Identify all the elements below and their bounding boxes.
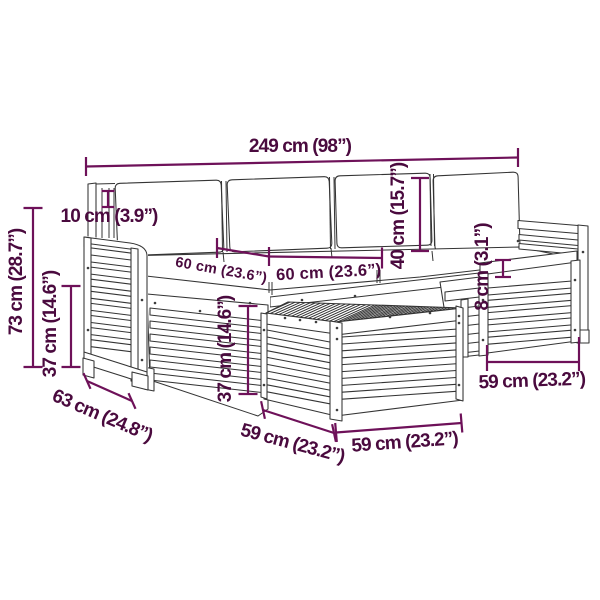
svg-text:59 cm (23.2”): 59 cm (23.2”)	[351, 428, 459, 456]
svg-text:249 cm (98”): 249 cm (98”)	[249, 136, 352, 157]
svg-text:63 cm (24.8”): 63 cm (24.8”)	[49, 385, 156, 446]
svg-text:59 cm (23.2”): 59 cm (23.2”)	[478, 369, 586, 394]
svg-text:37 cm (14.6”): 37 cm (14.6”)	[215, 295, 236, 402]
svg-text:8 cm (3.1”): 8 cm (3.1”)	[472, 223, 493, 311]
svg-text:10 cm (3.9”): 10 cm (3.9”)	[61, 206, 158, 227]
svg-text:73 cm (28.7”): 73 cm (28.7”)	[6, 228, 27, 335]
svg-text:59 cm (23.2”): 59 cm (23.2”)	[238, 420, 347, 468]
svg-text:40 cm (15.7”): 40 cm (15.7”)	[388, 162, 409, 269]
svg-text:37 cm (14.6”): 37 cm (14.6”)	[40, 270, 61, 377]
